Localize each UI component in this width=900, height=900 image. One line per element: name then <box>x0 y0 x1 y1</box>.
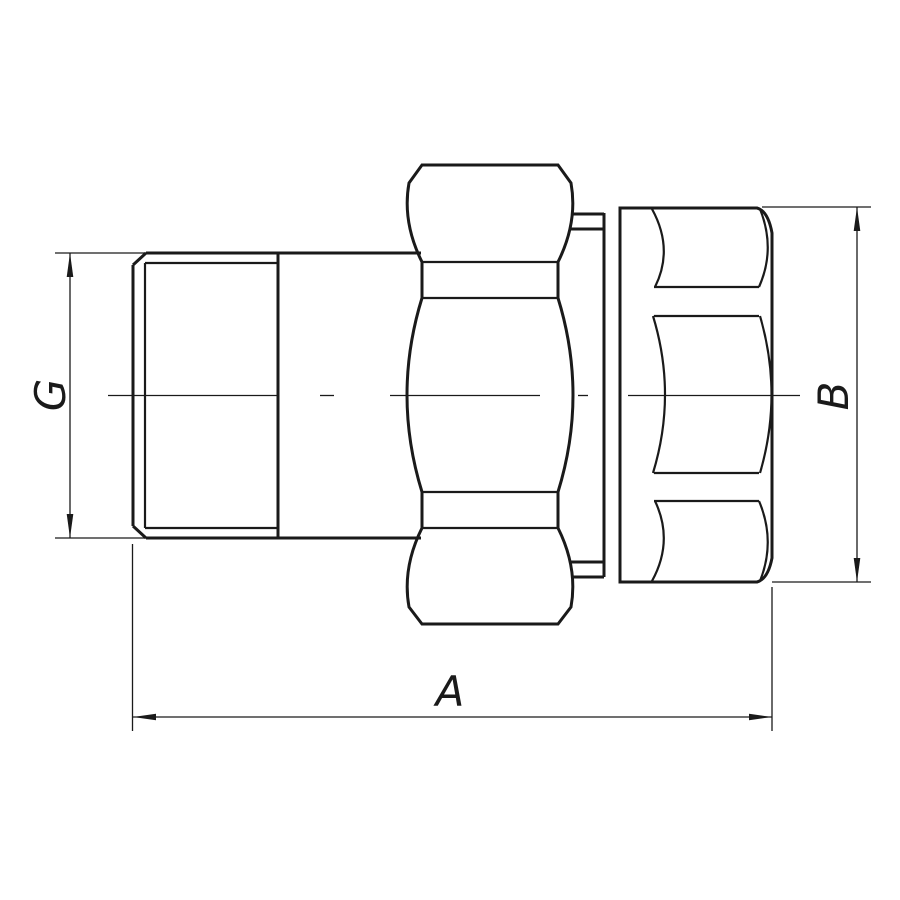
cap-nut-facet-arc <box>759 209 768 287</box>
b-arrowhead-down <box>854 558 861 582</box>
dimension-b: B <box>762 207 871 582</box>
g-arrowhead-down <box>67 514 74 538</box>
a-arrowhead-right <box>749 714 772 721</box>
technical-drawing-canvas: G A B <box>0 0 900 900</box>
a-arrowhead-left <box>133 714 156 721</box>
b-arrowhead-up <box>854 207 861 231</box>
dimension-b-label: B <box>809 382 858 411</box>
dimension-a: A <box>133 544 773 731</box>
cap-nut-facet-arc <box>653 316 665 473</box>
fitting-technical-drawing: G A B <box>0 0 900 900</box>
cap-nut-facet-arc <box>760 316 772 473</box>
g-arrowhead-up <box>67 253 74 277</box>
cap-nut-facet-arc <box>652 209 664 287</box>
dimension-g-label: G <box>26 379 75 412</box>
cap-nut-facet-arc <box>759 501 768 581</box>
dimension-a-label: A <box>433 667 465 716</box>
union-nut-outline <box>407 165 573 624</box>
cap-nut-facet-arc <box>652 501 664 581</box>
union-nut <box>407 165 573 624</box>
